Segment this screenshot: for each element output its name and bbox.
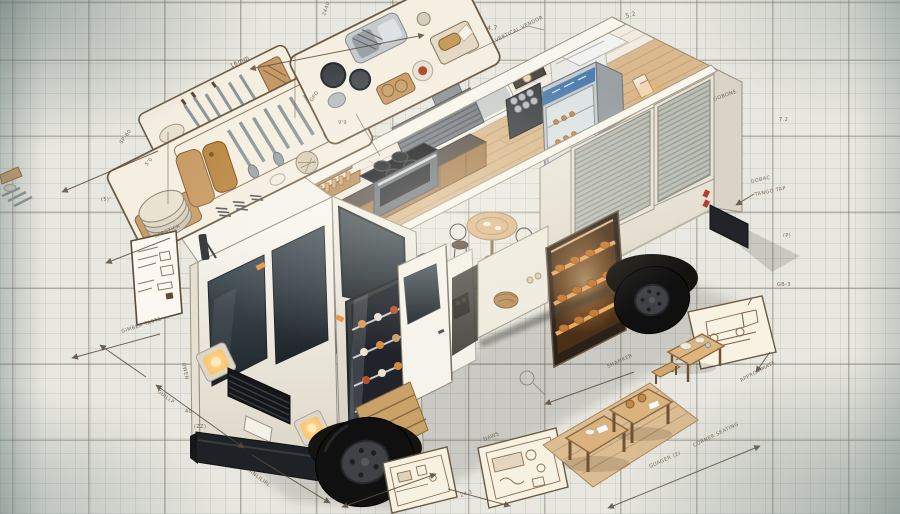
annotation: (5)' xyxy=(101,197,111,203)
annotation: OWEN xyxy=(180,362,189,380)
annotation: 40 xyxy=(185,409,192,415)
annotation: (P) xyxy=(783,233,791,239)
annotation: APPROXIMATE xyxy=(739,360,777,384)
annotation: (ZZ) xyxy=(194,424,206,430)
annotation: 4.7 xyxy=(487,25,498,32)
open-door xyxy=(398,244,452,406)
annotation: 5.2 xyxy=(625,10,637,20)
annotation: 7.2 xyxy=(779,117,788,123)
annotation: GOBAC xyxy=(750,175,771,185)
annotation: GUAGER (2) xyxy=(648,450,682,469)
annotation: 24.1 xyxy=(460,489,474,499)
annotation: TANGO TAP xyxy=(753,185,786,198)
annotation: CORNER SEATING xyxy=(692,421,740,448)
annotation: 9'9 xyxy=(338,120,347,126)
blueprint-grid-canvas: 2440 16mm SP-60 5'0 (5)' 4.7 VERTICAL VE… xyxy=(0,0,900,514)
utensils-partial xyxy=(0,167,32,206)
annotation: VERTICAL VENDOR xyxy=(494,15,544,44)
doorway-shadow xyxy=(452,264,478,356)
food-truck-illustration: 2440 16mm SP-60 5'0 (5)' 4.7 VERTICAL VE… xyxy=(0,0,900,514)
annotation: GB-3 xyxy=(777,282,791,288)
spec-panel-sketch xyxy=(131,231,182,325)
annotation: SP-60 xyxy=(119,128,133,145)
windshield-right xyxy=(272,226,328,364)
annotation: 2440 xyxy=(321,1,332,17)
